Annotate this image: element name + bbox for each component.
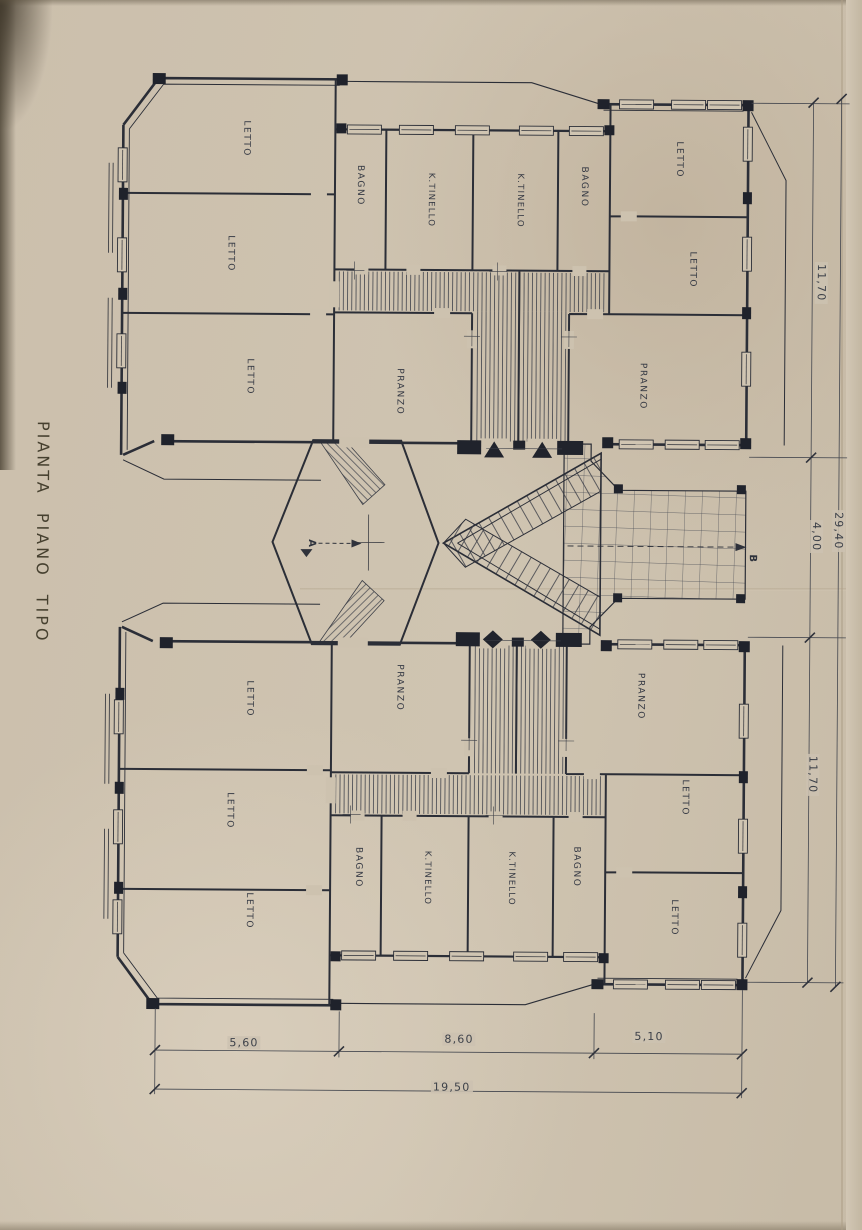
room-label-tinello: K.TINELLO [506,851,516,905]
dimension-label: 5,60 [227,1036,260,1049]
room-label-letto: LETTO [225,792,235,829]
room-label-letto: LETTO [225,235,235,272]
interior-walls-top-wing [121,78,749,445]
room-label-letto: LETTO [245,358,255,395]
room-label-letto: LETTO [687,251,697,288]
dimension-label: 5,10 [632,1030,665,1043]
dimension-label: 11,70 [815,262,828,304]
terrace-marker-b: B [747,554,758,562]
room-label-pranzo: PRANZO [635,673,645,720]
scanned-floor-plan-page: PIANTA PIANO TIPO LETTO LETTO LETTO BAGN… [0,0,862,1230]
page-title: PIANTA PIANO TIPO [32,421,53,644]
room-label-letto: LETTO [244,892,254,929]
dimension-label: 8,60 [442,1033,475,1046]
room-label-bagno: BAGNO [355,165,365,206]
room-label-bagno: BAGNO [571,847,581,888]
dimension-label: 19,50 [431,1081,473,1094]
floor-plan-layer: PIANTA PIANO TIPO LETTO LETTO LETTO BAGN… [0,0,862,1230]
room-label-pranzo: PRANZO [394,368,404,415]
room-label-letto: LETTO [674,141,684,178]
dimension-label: 11,70 [806,754,819,796]
room-label-letto: LETTO [680,779,690,816]
dimension-label: 29,40 [832,510,845,552]
room-label-tinello: K.TINELLO [422,851,432,905]
interior-walls-bottom-wing [117,641,745,1008]
room-label-pranzo: PRANZO [637,363,647,410]
room-label-letto: LETTO [244,680,254,717]
room-label-letto: LETTO [669,899,679,936]
room-label-bagno: BAGNO [579,167,589,208]
dimension-label: 4,00 [810,520,823,553]
room-label-bagno: BAGNO [353,847,363,888]
room-label-tinello: K.TINELLO [426,173,436,227]
room-label-letto: LETTO [241,120,251,157]
stair-marker-a: A [306,539,317,547]
room-label-pranzo: PRANZO [394,664,404,711]
room-label-tinello: K.TINELLO [515,173,525,227]
